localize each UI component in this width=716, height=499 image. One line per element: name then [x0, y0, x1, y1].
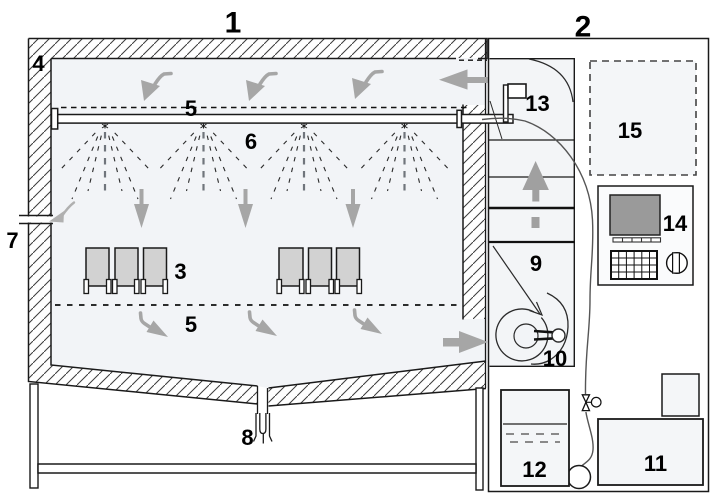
svg-text:8: 8: [241, 425, 253, 450]
svg-text:14: 14: [663, 211, 688, 236]
svg-text:7: 7: [6, 228, 18, 253]
svg-text:2: 2: [575, 11, 592, 44]
svg-text:5: 5: [185, 96, 197, 121]
svg-text:9: 9: [530, 251, 542, 276]
svg-text:12: 12: [522, 457, 546, 482]
svg-text:13: 13: [525, 91, 549, 116]
svg-text:10: 10: [543, 346, 567, 371]
svg-text:15: 15: [618, 118, 642, 143]
svg-text:1: 1: [225, 7, 242, 40]
svg-text:5: 5: [185, 312, 197, 337]
svg-text:4: 4: [32, 51, 45, 76]
svg-text:11: 11: [644, 451, 667, 476]
svg-text:3: 3: [174, 259, 186, 284]
svg-text:6: 6: [245, 129, 257, 154]
